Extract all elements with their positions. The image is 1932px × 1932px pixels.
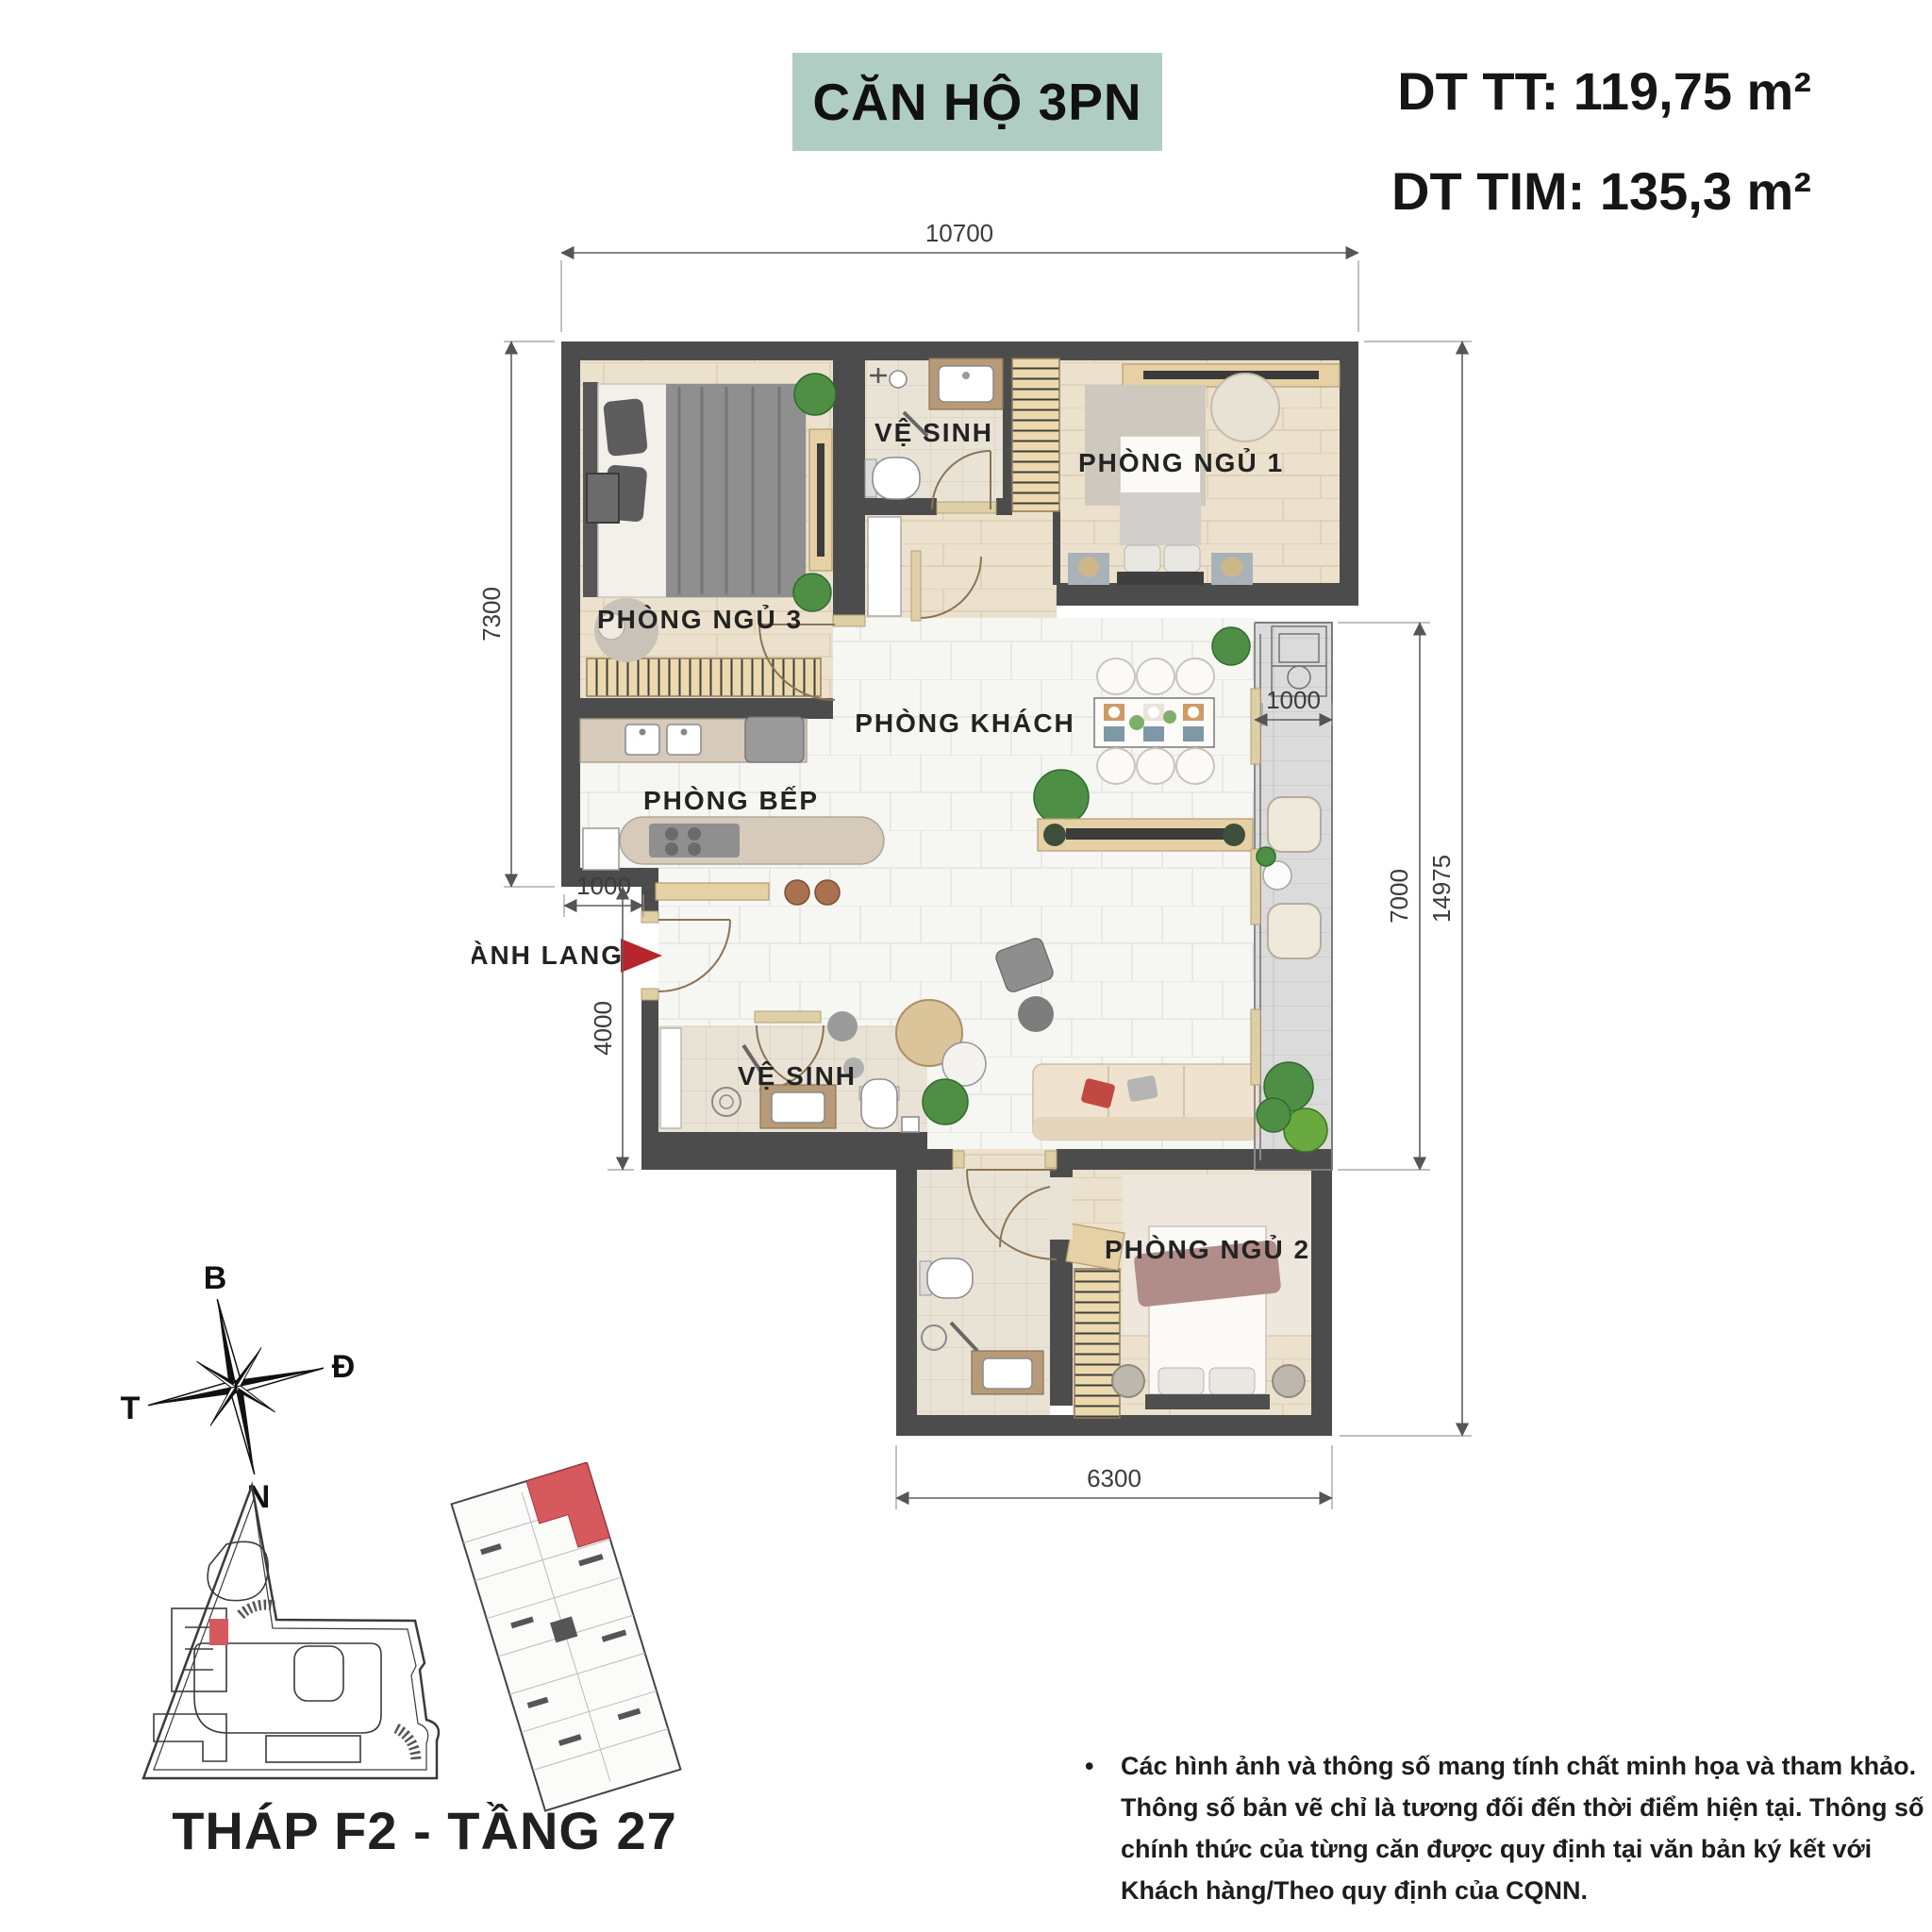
plant-icon: [794, 374, 836, 415]
unit-type-label: CĂN HỘ 3PN: [812, 72, 1141, 132]
disclaimer-bullet: •: [1085, 1745, 1121, 1911]
area-net: DT TT: 119,75 m²: [1255, 60, 1811, 122]
dim-left-lower: 4000: [589, 1001, 617, 1056]
compass-north-label: B: [204, 1260, 227, 1296]
disclaimer-line: Khách hàng/Theo quy định của CQNN.: [1121, 1870, 1924, 1911]
dim-right-total: 14975: [1427, 855, 1456, 923]
wardrobe-bedroom2: [1074, 1269, 1120, 1418]
site-key-plan: [113, 1462, 962, 1858]
dim-bottom: 6300: [1087, 1464, 1141, 1492]
dim-balcony-length: 7000: [1385, 869, 1413, 924]
compass-west-label: T: [121, 1391, 141, 1426]
room-label-bathroom1: VỆ SINH: [874, 418, 993, 447]
tower-floor-caption: THÁP F2 - TẦNG 27: [123, 1800, 726, 1861]
masterplan-unit-highlight: [209, 1619, 228, 1645]
disclaimer-line: Thông số bản vẽ chỉ là tương đối đến thờ…: [1121, 1787, 1924, 1828]
fridge: [745, 717, 804, 762]
masterplan-outline: [143, 1486, 439, 1778]
room-label-living: PHÒNG KHÁCH: [855, 708, 1075, 738]
disclaimer-line: Các hình ảnh và thông số mang tính chất …: [1121, 1745, 1924, 1787]
wardrobe-bedroom1: [1012, 358, 1059, 511]
floorplan-page: CĂN HỘ 3PN DT TT: 119,75 m² DT TIM: 135,…: [0, 0, 1932, 1932]
area-gross: DT TIM: 135,3 m²: [1255, 160, 1811, 222]
room-label-bedroom3: PHÒNG NGỦ 3: [597, 604, 803, 634]
entry-arrow-icon: [621, 939, 662, 973]
stool: [785, 880, 809, 905]
floorplan-drawing: 10700 7300 1000 4000 6300 1000 7000 1497…: [472, 217, 1509, 1538]
dim-top: 10700: [925, 219, 993, 247]
room-label-bedroom1: PHÒNG NGỦ 1: [1078, 447, 1284, 477]
room-label-bathroom2: VỆ SINH: [738, 1061, 857, 1091]
room-label-bedroom2: PHÒNG NGỦ 2: [1105, 1234, 1310, 1264]
floorplate-outline: [452, 1463, 681, 1811]
dim-balcony-width: 1000: [1266, 686, 1321, 714]
balcony-chair: [1268, 904, 1321, 958]
disclaimer-note: • Các hình ảnh và thông số mang tính chấ…: [1085, 1745, 1877, 1911]
balcony-chair: [1268, 797, 1321, 852]
room-label-hallway: HÀNH LANG: [472, 941, 624, 970]
disclaimer-line: chính thức của từng căn được quy định tạ…: [1121, 1828, 1924, 1870]
stool: [815, 880, 840, 905]
wardrobe-bedroom3: [587, 658, 821, 696]
dim-left-upper: 7300: [477, 587, 506, 641]
unit-type-badge: CĂN HỘ 3PN: [792, 53, 1162, 151]
room-label-kitchen: PHÒNG BẾP: [643, 786, 819, 815]
compass-east-label: Đ: [332, 1349, 356, 1385]
plant-icon: [923, 1079, 968, 1124]
plant-icon: [1034, 770, 1089, 824]
plant-icon: [1212, 627, 1250, 665]
